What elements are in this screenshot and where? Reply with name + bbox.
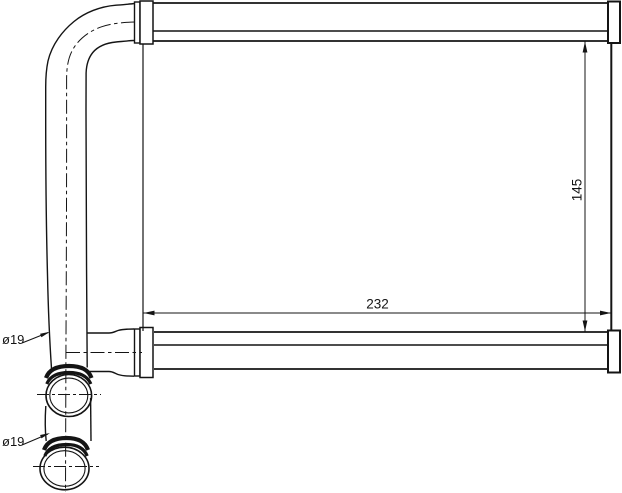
core-width-dimension: 232	[143, 297, 611, 316]
top-inlet-collar-ring	[135, 2, 141, 43]
bottom-tank-end-cap	[608, 331, 620, 373]
top-inlet-collar	[140, 1, 153, 44]
width-dimension-arrow-right	[600, 311, 611, 316]
upper-pipe-diameter-label: ø19	[2, 332, 24, 347]
core-height-dimension: 145	[570, 42, 588, 332]
width-dimension-arrow-left	[144, 311, 155, 316]
width-dimension-label: 232	[366, 297, 389, 312]
upper-pipe-inner-wall	[86, 41, 134, 368]
technical-drawing-canvas: 232 145 ø19 ø19	[0, 0, 622, 493]
lower-pipe-bottom-wall	[87, 372, 134, 377]
lower-pipe-opening-outer	[40, 447, 89, 490]
lower-pipe-end	[33, 438, 99, 490]
lower-pipe-top-wall	[87, 329, 134, 333]
upper-pipe-outer-wall	[46, 4, 135, 369]
upper-pipe-opening-inner	[50, 378, 88, 413]
lower-pipe	[45, 329, 142, 441]
top-tank	[135, 1, 621, 44]
upper-pipe-diameter-callout: ø19	[2, 332, 50, 347]
lower-pipe-diameter-label: ø19	[2, 434, 24, 449]
bottom-tank	[135, 328, 621, 378]
upper-pipe-opening-outer	[46, 375, 92, 417]
height-dimension-arrow-bottom	[583, 321, 588, 332]
lower-pipe-diameter-callout: ø19	[2, 433, 50, 449]
core-outline	[143, 43, 611, 331]
heater-core-drawing: 232 145 ø19 ø19	[0, 0, 622, 493]
height-dimension-arrow-top	[583, 42, 588, 53]
top-tank-end-cap	[608, 2, 620, 44]
upper-diameter-leader-arrow	[40, 332, 50, 337]
height-dimension-label: 145	[570, 179, 585, 202]
upper-pipe-centerline	[66, 22, 136, 492]
lower-pipe-opening-inner	[44, 451, 85, 487]
